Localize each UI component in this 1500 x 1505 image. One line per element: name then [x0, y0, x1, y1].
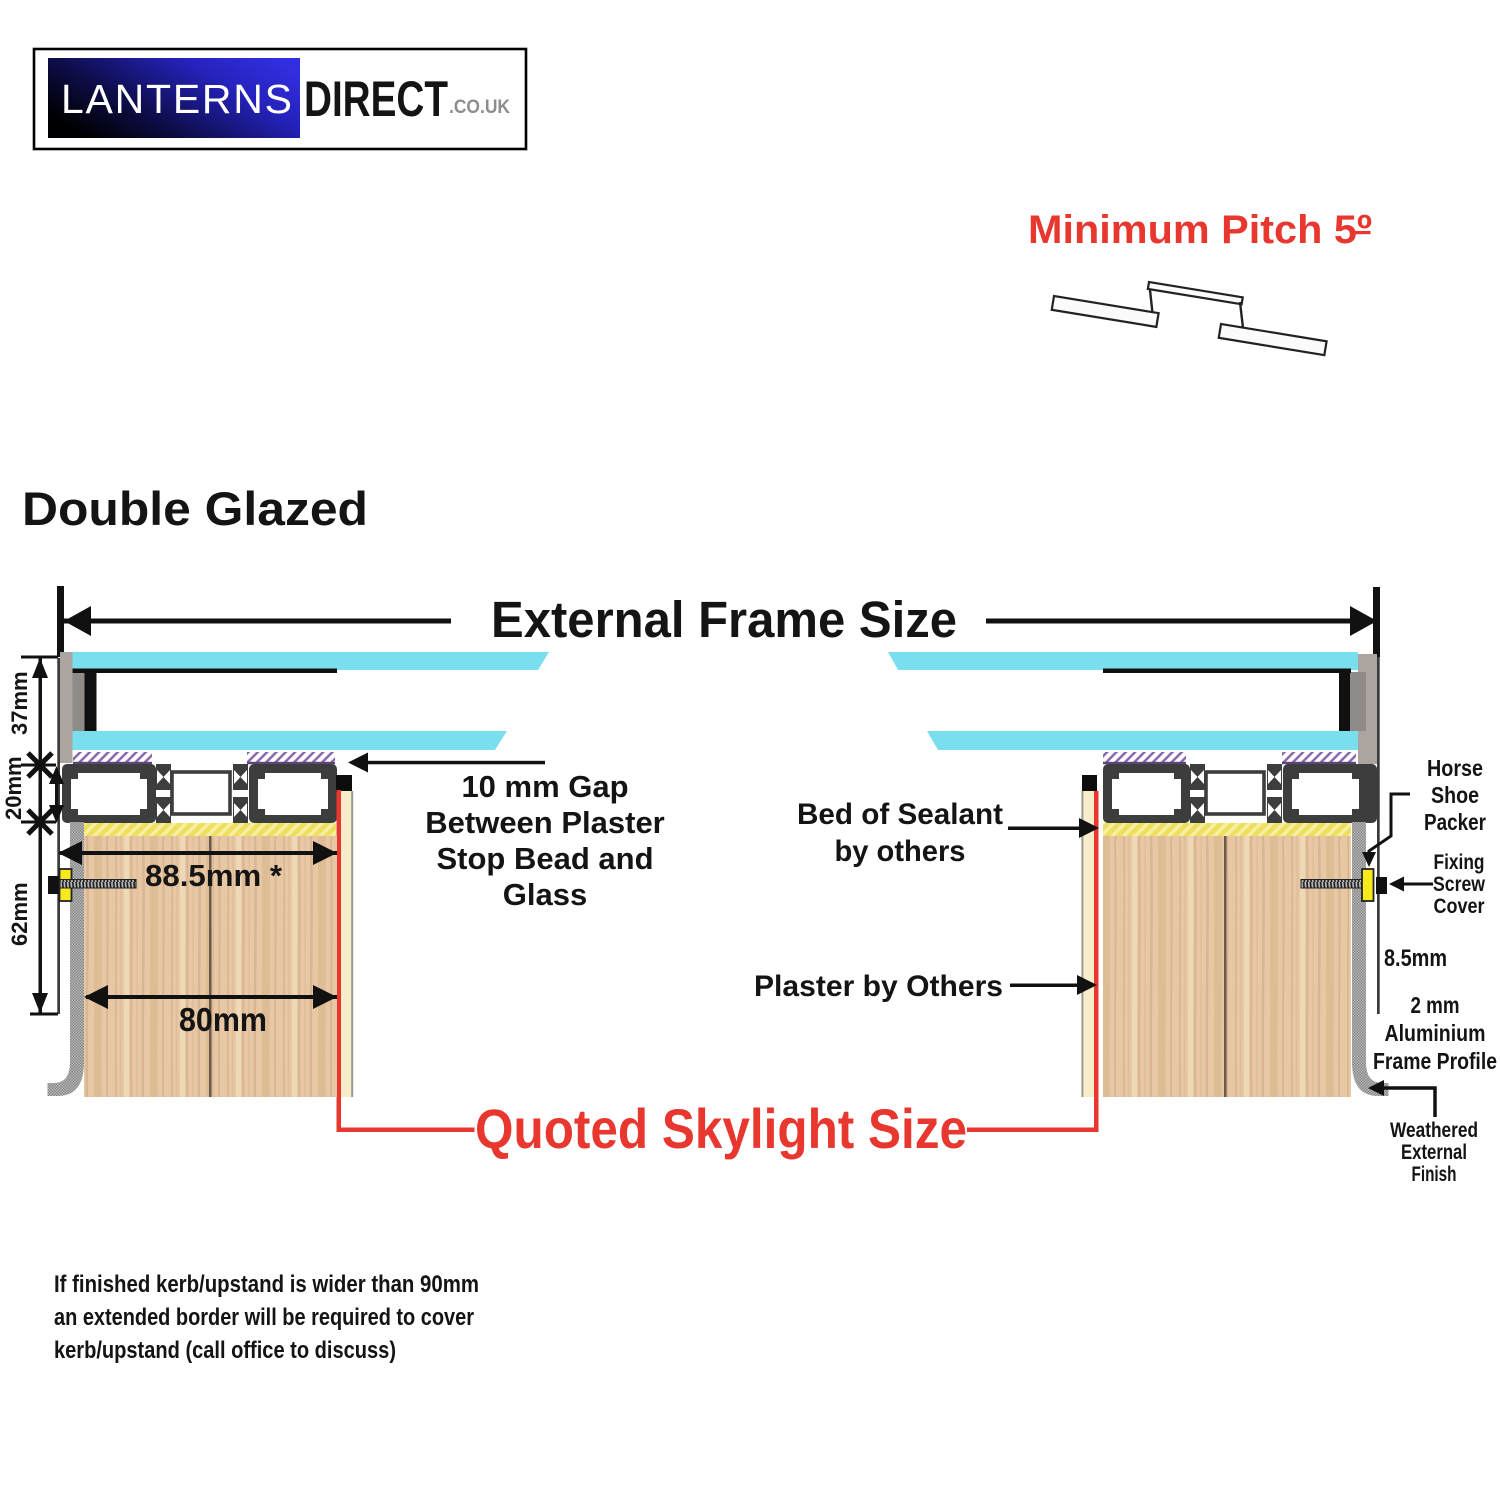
- svg-text:Weathered: Weathered: [1390, 1119, 1478, 1142]
- svg-text:Packer: Packer: [1424, 809, 1486, 835]
- svg-text:External Frame Size: External Frame Size: [491, 591, 957, 648]
- svg-text:LANTERNS: LANTERNS: [61, 76, 292, 122]
- svg-text:Bed of Sealant: Bed of Sealant: [797, 798, 1003, 831]
- svg-text:2 mm: 2 mm: [1411, 992, 1460, 1018]
- svg-text:62mm: 62mm: [7, 882, 32, 946]
- svg-text:8.5mm: 8.5mm: [1384, 945, 1447, 972]
- svg-text:Stop Bead and: Stop Bead and: [436, 841, 653, 876]
- svg-text:Screw: Screw: [1433, 873, 1486, 896]
- svg-text:DIRECT: DIRECT: [304, 71, 448, 127]
- svg-text:External: External: [1401, 1141, 1467, 1164]
- svg-text:an extended border will be req: an extended border will be required to c…: [54, 1304, 474, 1331]
- svg-text:20mm: 20mm: [1, 756, 26, 820]
- svg-text:Between Plaster: Between Plaster: [425, 805, 665, 840]
- svg-text:Glass: Glass: [503, 877, 587, 912]
- svg-text:Frame Profile: Frame Profile: [1373, 1048, 1497, 1074]
- svg-text:80mm: 80mm: [179, 1001, 267, 1038]
- svg-text:Shoe: Shoe: [1431, 782, 1479, 808]
- svg-text:Double Glazed: Double Glazed: [22, 482, 368, 535]
- svg-text:Plaster by Others: Plaster by Others: [754, 970, 1003, 1003]
- svg-text:Fixing: Fixing: [1434, 851, 1485, 874]
- svg-text:88.5mm *: 88.5mm *: [145, 858, 283, 893]
- svg-text:Horse: Horse: [1427, 755, 1483, 781]
- svg-text:Minimum Pitch 5º: Minimum Pitch 5º: [1028, 208, 1372, 252]
- svg-text:Quoted Skylight Size: Quoted Skylight Size: [475, 1097, 967, 1160]
- svg-text:Cover: Cover: [1434, 895, 1485, 918]
- svg-text:10 mm Gap: 10 mm Gap: [461, 769, 628, 804]
- svg-text:Finish: Finish: [1412, 1163, 1457, 1186]
- svg-text:by others: by others: [835, 835, 966, 868]
- svg-text:Aluminium: Aluminium: [1385, 1020, 1486, 1046]
- svg-text:37mm: 37mm: [7, 671, 32, 735]
- svg-text:.CO.UK: .CO.UK: [449, 97, 510, 118]
- svg-text:If finished kerb/upstand is wi: If finished kerb/upstand is wider than 9…: [54, 1271, 479, 1298]
- svg-text:kerb/upstand (call office to d: kerb/upstand (call office to discuss): [54, 1337, 396, 1364]
